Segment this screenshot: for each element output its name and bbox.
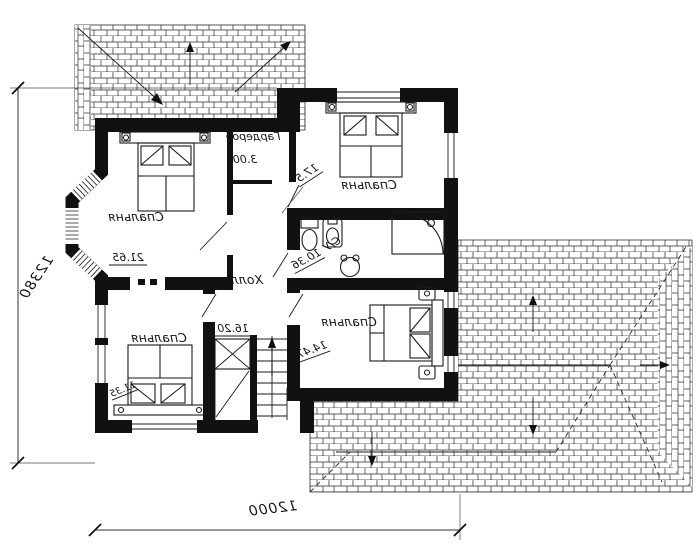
room-label-bedroom-top-right: Спальня [341,177,397,192]
roof-edge-strip [75,25,91,130]
room-name: Гардероб [225,130,280,143]
dimension-text-bottom: 12000 [247,498,298,520]
bed-headboard [114,405,206,415]
room-name: Спальня [108,209,164,224]
nightstand [419,366,435,379]
room-name: Спальня [341,177,397,192]
dimension-value: 12380 [16,253,57,303]
floor-plan-canvas: 12380 12000 Спальня 21.65 Гардероб 3.00 … [0,0,700,560]
lamp-icon [124,135,129,140]
roof-hatch-area [310,240,692,492]
stair-wall [250,335,257,420]
room-area-bedroom-left: 21.65 [109,251,147,265]
pillow-fold-line [410,308,430,332]
lamp-icon [202,135,207,140]
window-left-wall-lower [95,345,109,383]
window-opening [444,133,458,178]
threshold-mark [413,278,420,284]
room-label-bedroom-left: Спальня [108,209,164,224]
wall-segment [300,420,314,433]
closet-partition [233,180,272,184]
lamp-icon [425,370,430,375]
bed-bottom-right-bedroom [370,287,443,379]
room-name: Холл [231,272,264,287]
window-opening [444,356,458,372]
door-swings [200,185,303,317]
room-area-hall: 16.20 [215,322,251,336]
bed-left-bedroom [120,132,210,211]
room-area-wardrobe: 3.00 [233,153,258,166]
room-area-bedroom-top-right: 17.5 [292,160,323,187]
threshold-mark [431,278,438,284]
partition-segment [227,132,233,215]
window-opening [95,345,109,383]
door-leaf-line [289,294,303,317]
lamp-icon [197,408,202,413]
wall-segment [287,278,300,293]
window-bottom-wall [132,420,197,433]
door-track-mark [138,279,145,285]
washbasin-icon [341,258,360,277]
room-area-bedroom-bottom-left: 11.35 [108,379,138,400]
room-name: Спальня [131,330,187,345]
room-area: 16.20 [217,322,249,335]
bed-headboard [326,102,416,113]
dimension-text-left: 12380 [16,253,57,303]
roof-top-left [75,25,305,130]
toilet-tank [301,219,318,228]
door-track-mark [150,279,157,285]
bay-window-center [66,208,79,244]
wall-segment [287,208,300,250]
pillow-fold-line [376,116,398,135]
floor-plan-drawing: 12380 12000 Спальня 21.65 Гардероб 3.00 … [0,0,700,560]
window-opening [95,305,109,338]
room-label-wardrobe: Гардероб [225,130,280,143]
bed-headboard [120,132,210,143]
pillow-fold-line [410,334,430,358]
room-area: 21.65 [112,251,144,264]
wall-segment [300,278,444,290]
lamp-icon [425,291,430,296]
window-opening [132,420,197,433]
room-area: 3.00 [233,153,258,166]
door-leaf-line [273,253,288,277]
window-right-wall-low [444,356,458,372]
window-opening [337,88,400,102]
lamp-icon [119,408,124,413]
window-opening [444,292,458,308]
room-area: 11.35 [108,379,137,399]
window-left-wall-upper [95,305,109,338]
door-leaf-line [202,294,216,317]
window-right-wall-mid [444,292,458,308]
room-label-bedroom-bottom-right: Спальня [321,314,377,329]
wall-segment [287,388,458,401]
lamp-icon [408,105,413,110]
pillow-fold-line [141,146,163,165]
wall-segment [95,277,130,290]
pillow-fold-line [161,384,185,403]
pillow-fold-line [344,116,366,135]
bathroom-fixtures [301,212,444,285]
wall-segment [197,420,258,433]
door-leaf-line [200,222,227,250]
window-right-wall-top [444,133,458,178]
room-name: Спальня [321,314,377,329]
lamp-icon [330,105,335,110]
room-label-bedroom-bottom-left: Спальня [131,330,187,345]
roof-right-and-bottom [310,240,692,492]
wall-segment [203,290,215,294]
bed-headboard [432,300,443,366]
bed-bottom-left-bedroom [114,345,206,415]
window-top-wall [337,88,400,102]
room-label-hall: Холл [231,272,264,287]
bed-top-right-bedroom [326,102,416,177]
stair-underside-line [216,371,249,417]
pillow-fold-line [169,146,191,165]
wall-segment [300,208,444,220]
dimension-value: 12000 [247,498,298,520]
wall-segment [165,277,233,290]
